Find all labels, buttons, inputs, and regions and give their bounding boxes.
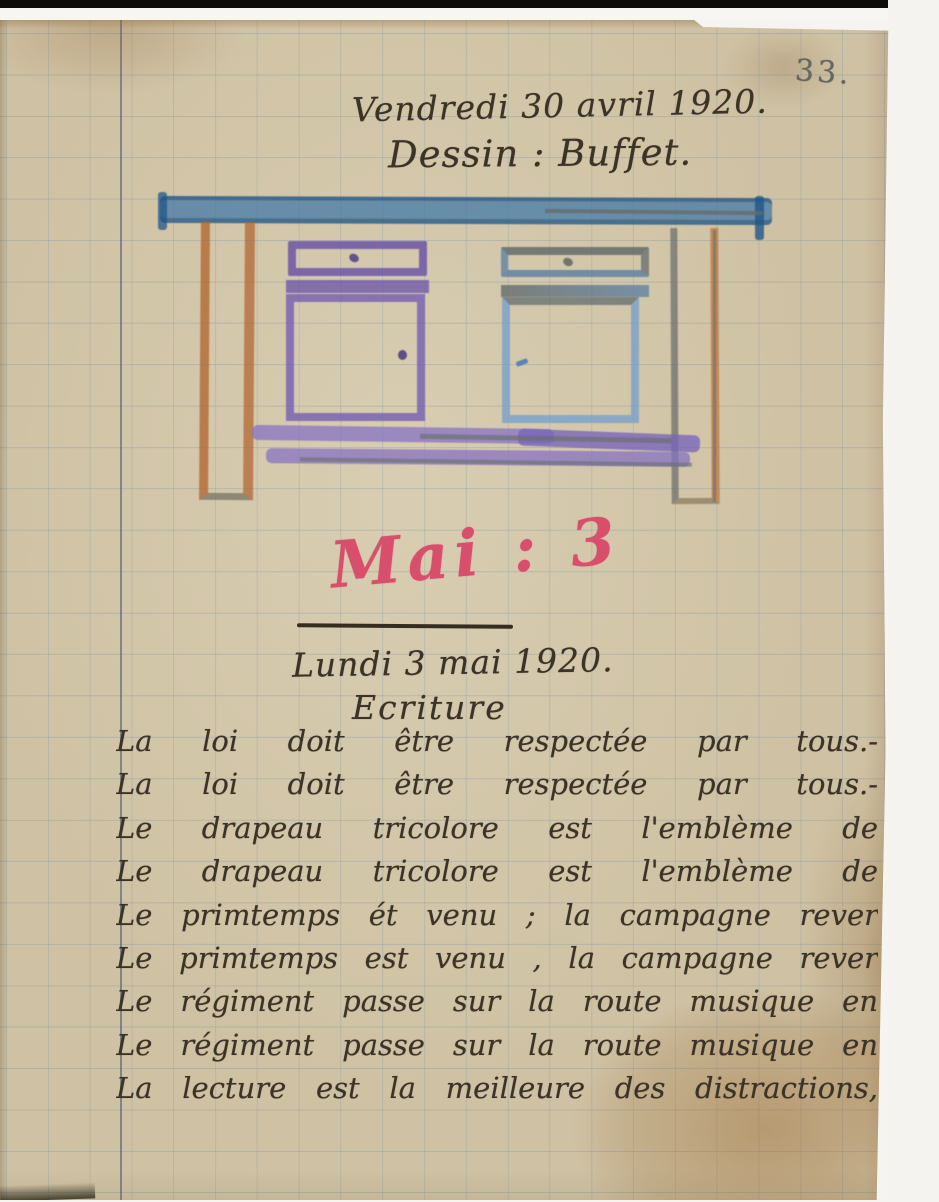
writing-line-3: Le drapeau tricolore est l'emblème de (116, 811, 878, 854)
page-number: 33. (794, 53, 853, 92)
bottom-left-corner-shadow (0, 1182, 95, 1201)
underlying-page-edge (0, 8, 939, 20)
writing-line-8: Le régiment passe sur la route musique e… (116, 1028, 878, 1071)
writing-line-7: Le régiment passe sur la route musique e… (116, 984, 878, 1027)
writing-line-9: La lecture est la meilleure des distract… (116, 1071, 878, 1114)
writing-line-1: La loi doit être respectée par tous.- (116, 724, 878, 767)
entry1-subject-heading: Dessin : Buffet. (388, 131, 692, 177)
entry2-subject-heading: Ecriture (352, 688, 507, 727)
buffet-top-left-cap (158, 192, 167, 230)
entry2-date-heading: Lundi 3 mai 1920. (292, 640, 614, 685)
notebook-page: 33. Vendredi 30 avril 1920. Dessin : Buf… (0, 20, 890, 1200)
writing-line-4: Le drapeau tricolore est l'emblème de (116, 854, 878, 897)
buffet-right-rail (501, 285, 649, 297)
writing-line-6: Le primtemps est venu , la campagne reve… (116, 941, 878, 984)
buffet-top-right-cap (755, 196, 764, 240)
buffet-left-leg (199, 222, 255, 500)
writing-line-2: La loi doit être respectée par tous.- (116, 767, 878, 810)
left-door-knob (398, 350, 407, 360)
handwriting-practice-block: La loi doit être respectée par tous.- La… (116, 724, 878, 1115)
scanner-top-strip (0, 0, 939, 8)
buffet-right-drawer (501, 247, 649, 277)
scanner-background (888, 0, 939, 1200)
buffet-right-leg-gray-line (713, 230, 716, 502)
buffet-left-rail (286, 280, 429, 293)
writing-line-5: Le primtemps ét venu ; la campagne rever (116, 898, 878, 941)
